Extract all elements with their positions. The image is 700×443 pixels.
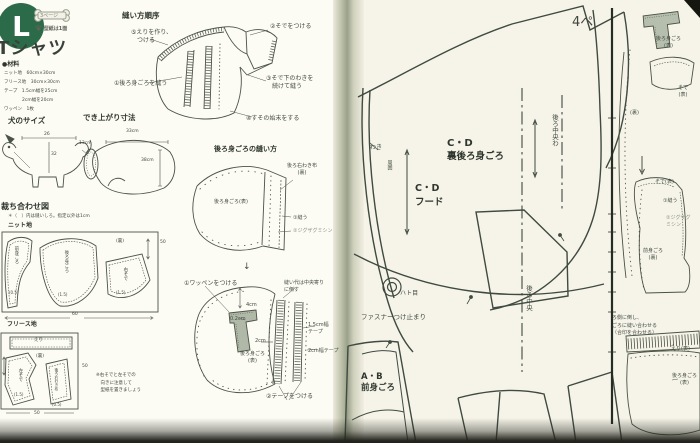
materials-heading: ●材料 [2,61,19,69]
knit-back-sa: (1.5) [58,292,67,297]
measure-02cm: 0.2cm [230,316,246,323]
back-body-heading: 後ろ身ごろの縫い方 [214,145,277,154]
dog-size-heading: 犬のサイズ [8,116,45,126]
flow-down-arrow: ↓ [243,262,251,274]
scan-bottom-shadow [0,418,700,443]
lining-back-name: 裏後ろ身ごろ [447,151,504,163]
step1-label: ①後ろ身ごろを縫う [114,80,167,88]
step2-label: ②そでをつける [270,23,311,31]
np-body-label: 後ろ身ごろ (表) [672,373,697,386]
finished-width: 33cm [126,129,139,135]
knit-sleeve-sa: (1.5) [116,290,125,295]
patch-tape-diagram [183,276,351,412]
finished-length: 38cm [141,158,154,164]
eyelet-label: ハト目 [400,290,418,298]
fleece-height: 50 [82,364,88,370]
attach-patch-label: ①ワッペンをつける [184,280,237,288]
np-sleeve2-label: そで(表) [655,179,674,186]
knit-cutting-layout [0,228,172,323]
fleece-side-piece-sa: (0.5) [52,402,61,407]
dog-back-length: 26 [44,132,50,138]
hood-name: フード [415,197,444,209]
cutting-note: ＊（ ）内は縫いしろ。指定以外は1cm [8,214,90,220]
step3-label: ③そで下のわきを 続けて縫う [266,75,313,91]
step5-label: ⑤えりを作り、 つける [131,29,172,45]
materials-item: フリース地 30cm×30cm [4,80,60,86]
finished-size-heading: でき上がり寸法 [83,113,136,123]
bone-page-label: 3ページ [40,12,58,19]
page-marker: 4ペ [572,15,593,32]
np-wrong-side: (裏) [630,110,639,117]
knit-height: 50 [160,240,166,246]
attach-tape-label: ②テープをつける [266,393,313,401]
measure-2cm: 2cm [255,338,266,345]
np-collar-label: えり(表) [671,346,690,353]
np-zigzag-label: ②ジグザグ ミシン [666,215,690,228]
waki-label: わき [370,144,382,152]
finished-neck: 13cm [79,141,92,147]
finished-garment-diagram [78,124,186,199]
fleece-cutting-layout [0,328,90,416]
zipper-stop-label: ファスナーつけ止まり [361,313,426,321]
np-seam-note: ろ側に倒し、 ごろに縫い合わせる （合印を合わせる） [612,315,657,338]
knit-width: 60 [72,312,78,318]
center-back-fold-label: 後ろ中央わ [550,114,558,168]
back-sew-label: ①縫う [293,215,307,222]
np-front-label: 前身ごろ (裏) [643,248,663,261]
fleece-wrong-side: (裏) [36,354,44,360]
knit-wrong-side: (裏) [116,239,124,245]
np-patch-body-label: 後ろ身ごろ (表) [656,36,681,49]
fleece-sleeve-label: 左そで [17,368,23,394]
materials-item: 2cm幅を20cm [4,98,53,104]
fold-note-label: 縫い代は中央寄り に倒す [284,280,324,293]
center-back-label: 後ろ中央 [524,285,532,329]
front-ab-label: A・B [361,372,383,383]
materials-item: ワッペン 1枚 [4,107,34,113]
np-sleeve-label: そで (表) [678,85,688,98]
fleece-width: 50 [34,411,40,417]
fleece-direction-note: ※右そでと左そでの 向きに注意して 型紙を置きましょう [96,372,141,395]
materials-item: テープ 1.5cm幅を25cm [4,89,57,95]
knit-front-sa: (0.5) [9,290,18,295]
front-ab-name: 前身ごろ [361,383,395,394]
face-edge-label: 周囲 [386,160,393,184]
tape2-label: 2cm幅テープ [308,348,339,355]
lining-back-cd: C・D [447,137,473,150]
page-title: Tシャツ [0,34,67,60]
book-spread-scan: L 3ページ 型紙は1面 Tシャツ ●材料 ニット地 60cm×30cm フリー… [0,0,700,443]
back-body-sewing-diagram [183,156,351,256]
measure-4cm: 4cm [246,302,257,309]
fleece-sleeve-sa: (1.5) [14,392,23,397]
step4-label: ④すその始末をする [246,115,299,123]
bone-page-ref: 3ページ [33,8,73,23]
patch-body-label: 後ろ身ごろ (表) [240,351,265,364]
pattern-sheet-note: 型紙は1面 [35,25,67,33]
knit-front-label: 前身ごろ [13,246,19,288]
tape15-label: 1.5cm幅 テープ [308,322,329,335]
np-sew-label: ①縫う [663,198,677,205]
fleece-side-piece-label: 後ろ右わき布 [54,368,59,404]
paw-icon [35,25,42,31]
back-side-piece-label: 後ろ右わき布 (裏) [287,163,317,176]
materials-item: ニット地 60cm×30cm [4,71,55,77]
cutting-heading: 裁ち合わせ図 [1,202,49,212]
knit-back-label: 後ろ身ごろ [63,250,69,296]
back-main-piece-label: 後ろ身ごろ(表) [214,199,248,206]
fleece-collar-label: えり [34,338,43,344]
back-zigzag-label: ②ジグザグミシン [293,228,332,235]
dog-girth: 32 [51,152,57,158]
hood-cd: C・D [415,183,439,195]
